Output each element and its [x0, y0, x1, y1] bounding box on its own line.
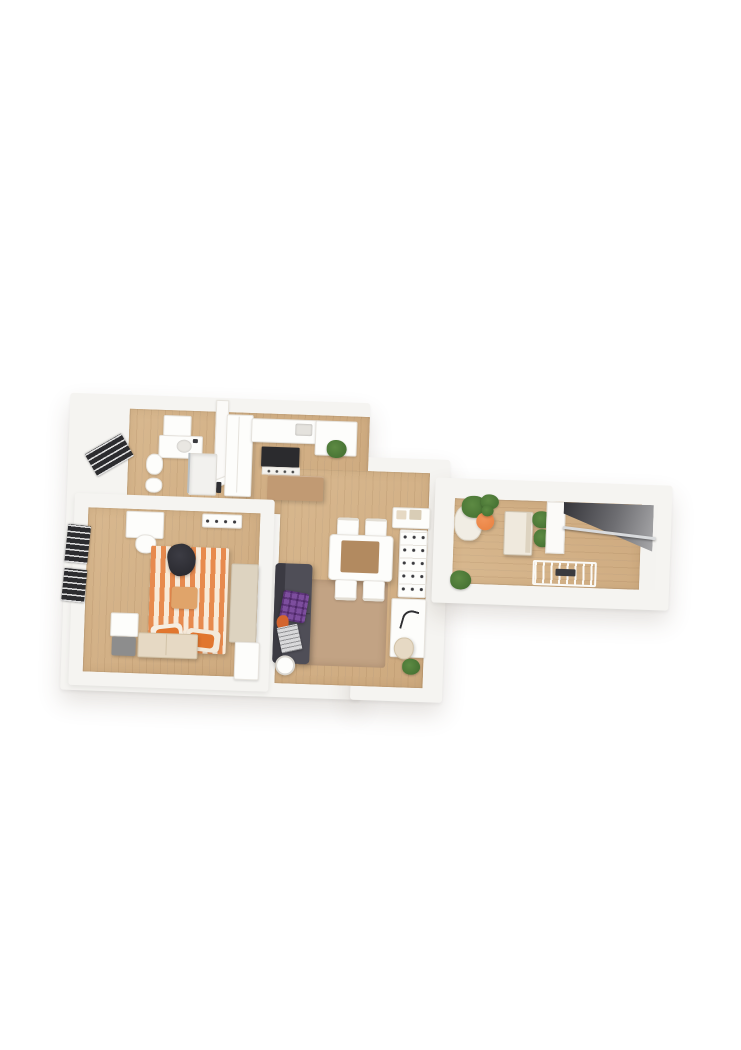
rack-item: [555, 569, 575, 577]
wardrobe-lower-cabinet: [234, 642, 260, 681]
kitchen-sink: [295, 424, 312, 437]
kitchen-island: [267, 475, 324, 502]
shower: [188, 453, 217, 496]
bidet: [145, 477, 163, 493]
cooktop-oven: [261, 446, 300, 467]
wardrobe: [229, 563, 259, 643]
bedroom-window-upper: [64, 524, 91, 564]
living-desk-chair: [393, 637, 414, 660]
bedroom-window-lower: [61, 568, 87, 603]
faucet: [193, 439, 198, 443]
bedroom-storage-boxes: [110, 612, 139, 637]
dining-chair-bottom-left: [334, 579, 357, 601]
apartment-floorplan: [50, 384, 676, 725]
shelf-unit: [398, 529, 428, 598]
bedroom-dresser: [202, 513, 242, 528]
bed-cushion: [171, 586, 198, 609]
table-runner: [340, 540, 379, 573]
floorplan-canvas: [0, 0, 741, 1050]
kitchen-appliance: [216, 482, 221, 493]
dining-chair-bottom-right: [362, 580, 385, 602]
bathroom-wall-cabinet: [163, 415, 192, 437]
bed-end-bench: [137, 632, 198, 659]
sideboard-box-left: [396, 510, 406, 519]
sideboard-box-right: [409, 510, 421, 520]
bedroom-gray-box: [111, 636, 136, 656]
toilet: [146, 453, 164, 475]
